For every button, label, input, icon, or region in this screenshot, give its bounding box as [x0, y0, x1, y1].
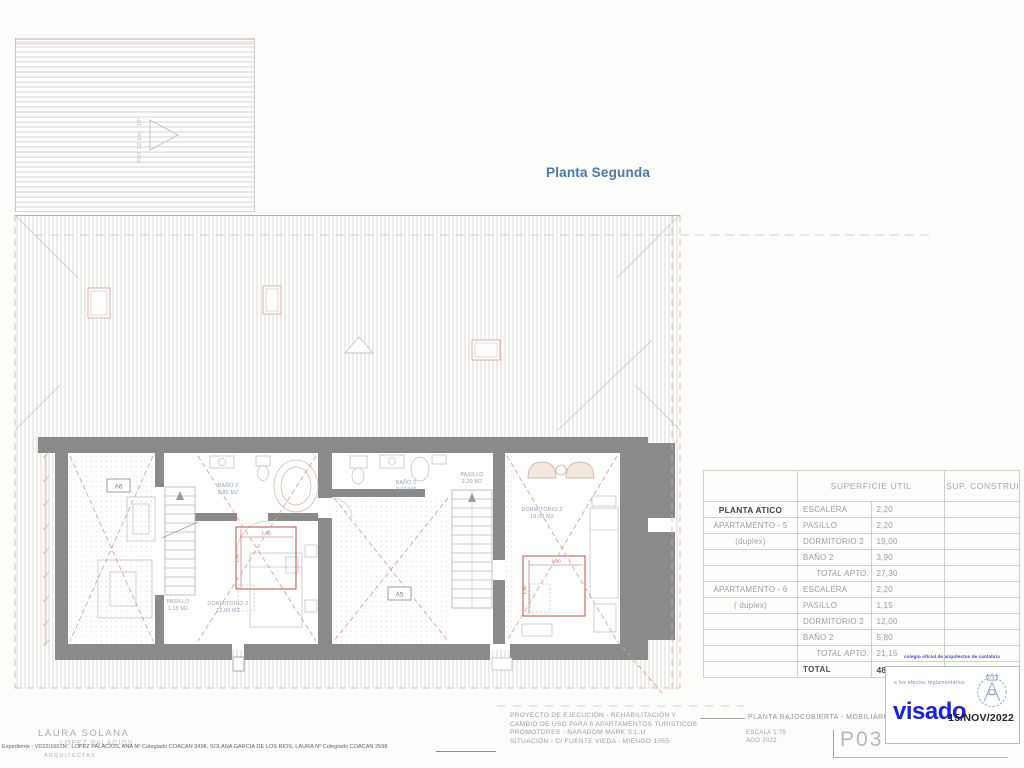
concept-cell: TOTAL [798, 662, 872, 678]
room-label: DORMITORIO 2 [521, 507, 562, 513]
concept-cell: TOTAL APTO. 3 [798, 646, 872, 662]
room-area: 1,15 M2 [168, 606, 189, 612]
room-area: 5,80 M2 [218, 490, 239, 496]
room-area: 12,00 M2 [216, 608, 240, 614]
group-cell: (duplex) [704, 534, 798, 550]
drawing-sheet: PDT 32,6% - 18° [0, 0, 1024, 768]
wall-opening [648, 518, 675, 532]
table-row: PLANTA ATICO ESCALERA 2,20 [704, 502, 1020, 518]
construida-cell [945, 550, 1020, 566]
scale-label: ESCALA 1:75 [746, 730, 786, 736]
sheet-title: PLANTA BAJOCUBIERTA - MOBILIARIO [748, 714, 892, 721]
svg-text:A5: A5 [396, 592, 404, 599]
attic-floor-plan: 1,80 1,80 1,80 1,80 A6 [38, 437, 675, 694]
skylight [88, 288, 110, 318]
util-cell: 1,15 [871, 598, 945, 614]
header-blank [704, 471, 798, 502]
construida-cell [945, 598, 1020, 614]
titleblock-divider [700, 718, 745, 719]
group-cell [704, 646, 798, 662]
surface-table: SUPERFICIE ÚTIL SUP. CONSTRUIDA PLANTA A… [703, 470, 1020, 678]
skylight [472, 340, 500, 360]
concept-cell: ESCALERA [798, 502, 872, 518]
staircase-right [452, 490, 492, 608]
project-line: PROYECTO DE EJECUCIÓN - REHABILITACIÓN Y [510, 712, 697, 721]
visado-date: 15/NOV/2022 [948, 712, 1014, 724]
table-row: ( duplex) PASILLO 1,15 [704, 598, 1020, 614]
table-header-row: SUPERFICIE ÚTIL SUP. CONSTRUIDA [704, 471, 1020, 502]
room-area: 3,90 M2 [396, 487, 417, 493]
construida-cell [945, 518, 1020, 534]
dimension-label: 1,80 [522, 585, 528, 595]
stamp-note: a los efectos reglamentarios [894, 680, 965, 686]
door-step [492, 658, 512, 670]
util-cell: 19,00 [871, 534, 945, 550]
dimension-label: 1,80 [235, 553, 241, 563]
sheet-number: P03 [840, 728, 883, 752]
roof-pitch-label: PDT 32,6% - 18° [137, 117, 143, 163]
room-label: BAÑO 2 [396, 479, 417, 486]
group-cell [704, 566, 798, 582]
college-emblem-icon [970, 668, 1014, 712]
util-cell: 12,00 [871, 614, 945, 630]
group-cell [704, 614, 798, 630]
table-row: APARTAMENTO - 5 PASILLO 2,20 [704, 518, 1020, 534]
visado-stamp: a los efectos reglamentarios visado 15/N… [885, 666, 1020, 744]
group-cell: PLANTA ATICO [704, 502, 798, 518]
concept-cell: TOTAL APTO. 6 (Atico) [798, 566, 872, 582]
apartment-tag-a5: A5 [388, 587, 411, 600]
concept-cell: DORMITORIO 2 [798, 534, 872, 550]
util-cell: 2,20 [871, 582, 945, 598]
dimension-label: 1,80 [551, 559, 561, 565]
header-sup-construida: SUP. CONSTRUIDA [945, 471, 1020, 502]
sheet-number-divider [833, 730, 834, 757]
upper-roof-panel: PDT 32,6% - 18° [15, 38, 255, 212]
table-row: DORMITORIO 2 12,00 [704, 614, 1020, 630]
room-label: DORMITORIO 2 [207, 601, 248, 607]
util-cell: 2,20 [871, 518, 945, 534]
concept-cell: BAÑO 2 [798, 630, 872, 646]
construida-cell [945, 630, 1020, 646]
project-line: PROMOTORES - NARADOM MARK S.L.U [510, 729, 697, 738]
group-cell: APARTAMENTO - 5 [704, 518, 798, 534]
util-cell: 2,20 [871, 502, 945, 518]
chimney-stub [233, 657, 244, 671]
college-stamp-header: colegio oficial de arquitectos de cantab… [886, 654, 1018, 659]
construida-cell [945, 566, 1020, 582]
table-row: TOTAL APTO. 6 (Atico) 27,30 [704, 566, 1020, 582]
skylight [263, 286, 281, 314]
firm-subtitle: ARQUITECTAS [44, 753, 96, 759]
sheet-number-underline [833, 757, 1008, 758]
apartment-tag-a6: A6 [107, 479, 130, 492]
group-cell [704, 550, 798, 566]
room-label: PASILLO [460, 472, 483, 478]
expediente-line: Expediente : VD22/1601N : LOPEZ PALACIOS… [2, 744, 387, 750]
project-line: SITUACIÓN - C/ FUENTE VIEDA - MIENGO 105… [510, 738, 697, 747]
room-area: 19,00 M2 [530, 514, 554, 520]
table-row: BAÑO 2 3,90 [704, 550, 1020, 566]
project-line: CAMBIO DE USO PARA 6 APARTAMENTOS TURIST… [510, 721, 697, 730]
construida-cell [945, 534, 1020, 550]
util-cell: 5,80 [871, 630, 945, 646]
group-cell [704, 630, 798, 646]
group-cell: APARTAMENTO - 6 [704, 582, 798, 598]
concept-cell: PASILLO [798, 518, 872, 534]
project-description: PROYECTO DE EJECUCIÓN - REHABILITACIÓN Y… [510, 712, 697, 746]
table-row: BAÑO 2 5,80 [704, 630, 1020, 646]
concept-cell: PASILLO [798, 598, 872, 614]
expediente-underline [436, 751, 496, 752]
table-row: APARTAMENTO - 6 ESCALERA 2,20 [704, 582, 1020, 598]
group-cell: ( duplex) [704, 598, 798, 614]
group-cell [704, 662, 798, 678]
util-cell: 3,90 [871, 550, 945, 566]
construida-cell [945, 614, 1020, 630]
table-row: (duplex) DORMITORIO 2 19,00 [704, 534, 1020, 550]
svg-text:A6: A6 [115, 484, 123, 491]
construida-cell [945, 502, 1020, 518]
room-label: BAÑO 2 [218, 482, 239, 489]
staircase-left [162, 487, 198, 595]
firm-name: LAURA SOLANA [38, 728, 130, 739]
concept-cell: DORMITORIO 2 [798, 614, 872, 630]
concept-cell: ESCALERA [798, 582, 872, 598]
util-cell: 27,30 [871, 566, 945, 582]
construida-cell [945, 582, 1020, 598]
room-area: 2,20 M2 [462, 479, 483, 485]
page-title: Planta Segunda [546, 165, 650, 180]
concept-cell: BAÑO 2 [798, 550, 872, 566]
room-label: PASILLO [166, 599, 189, 605]
date-label: AGO 2022 [746, 738, 777, 744]
header-superficie-util: SUPERFICIE ÚTIL [798, 471, 945, 502]
